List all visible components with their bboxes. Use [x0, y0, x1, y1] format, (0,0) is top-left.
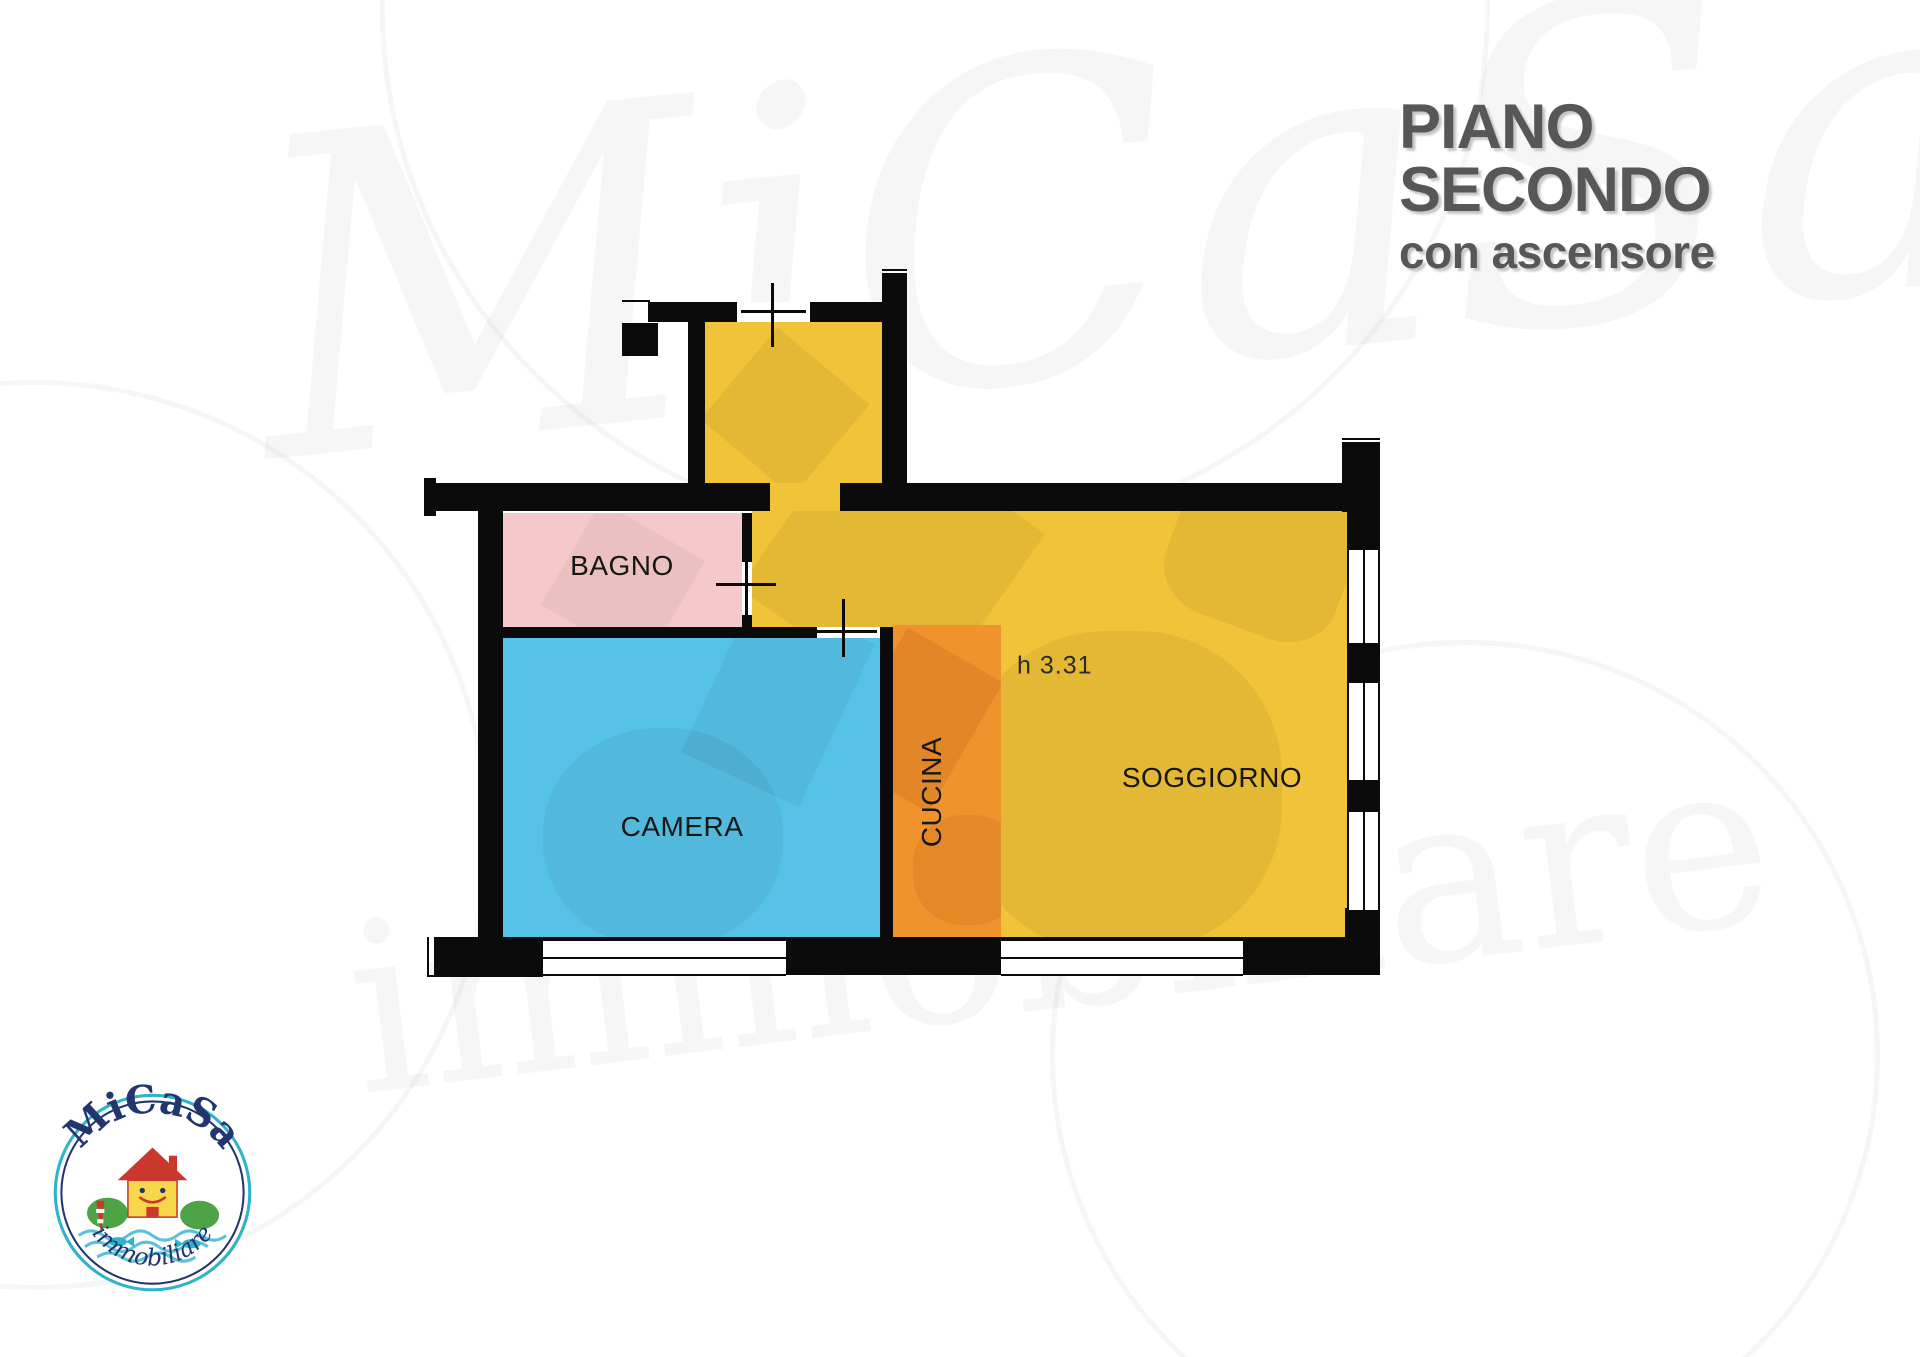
entry-door-mark	[771, 283, 774, 347]
passage-area	[770, 483, 840, 513]
page-title: PIANO SECONDO	[1399, 96, 1920, 222]
entry-door-mark	[741, 310, 806, 313]
wall-outline-bottom-cap-left	[427, 937, 429, 977]
bagno-door-mark	[745, 553, 748, 615]
wall-outline-entry-right-cap	[882, 269, 907, 271]
agency-logo: MiCaSa immobiliare	[50, 1082, 255, 1297]
wall-top-right	[840, 483, 1342, 511]
bagno-label: BAGNO	[570, 550, 674, 582]
camera-door-mark	[813, 630, 877, 633]
wall-right-seg2	[1347, 641, 1380, 685]
camera-room	[503, 638, 880, 937]
wall-entry-right	[882, 273, 907, 483]
window-bottom-camera	[543, 939, 786, 976]
entry-hall-area	[705, 322, 882, 487]
window-right-3	[1347, 812, 1380, 910]
wall-camera-top	[478, 627, 817, 638]
page-subtitle: con ascensore	[1399, 229, 1920, 275]
wall-entry-left	[688, 322, 705, 483]
soggiorno-label: SOGGIORNO	[1122, 762, 1302, 794]
wall-right-seg3	[1347, 778, 1380, 814]
wall-entry-top-right	[810, 302, 885, 322]
wall-top-mid	[705, 483, 770, 511]
camera-door-mark	[842, 599, 845, 657]
logo-pole-stripe	[96, 1209, 104, 1213]
wall-top-left	[434, 483, 705, 511]
wall-outline-entry	[622, 300, 650, 302]
watermark-brand-script: MiCaSa	[228, 0, 1920, 562]
watermark-swirl-top	[380, 0, 1490, 540]
wall-outline-bottom-cap	[427, 975, 543, 977]
logo-house-eye	[160, 1188, 165, 1193]
room-texture	[705, 327, 870, 487]
logo-house-door	[146, 1207, 158, 1217]
window-right-2	[1347, 683, 1380, 780]
window-bottom-soggiorno	[1001, 939, 1243, 976]
wall-entry-top-left	[648, 302, 737, 322]
floorplan-page: MiCaSa immobiliare	[0, 0, 1920, 1357]
cucina-label: CUCINA	[916, 737, 948, 847]
wall-outline-protrusion-cap	[1342, 438, 1380, 440]
page-title-block: PIANO SECONDO con ascensore	[1399, 96, 1920, 275]
ceiling-height-note: h 3.31	[1017, 652, 1093, 681]
window-right-1	[1347, 550, 1380, 643]
wall-right-protrusion	[1342, 442, 1380, 512]
wall-left	[478, 483, 503, 937]
camera-label: CAMERA	[621, 811, 744, 843]
wall-stub-left-of-entry	[622, 323, 658, 356]
room-texture	[1150, 511, 1347, 657]
wall-camera-right	[880, 627, 893, 939]
wall-right-seg1	[1347, 510, 1380, 552]
logo-house-eye	[140, 1188, 145, 1193]
logo-pole-stripe	[97, 1219, 103, 1223]
